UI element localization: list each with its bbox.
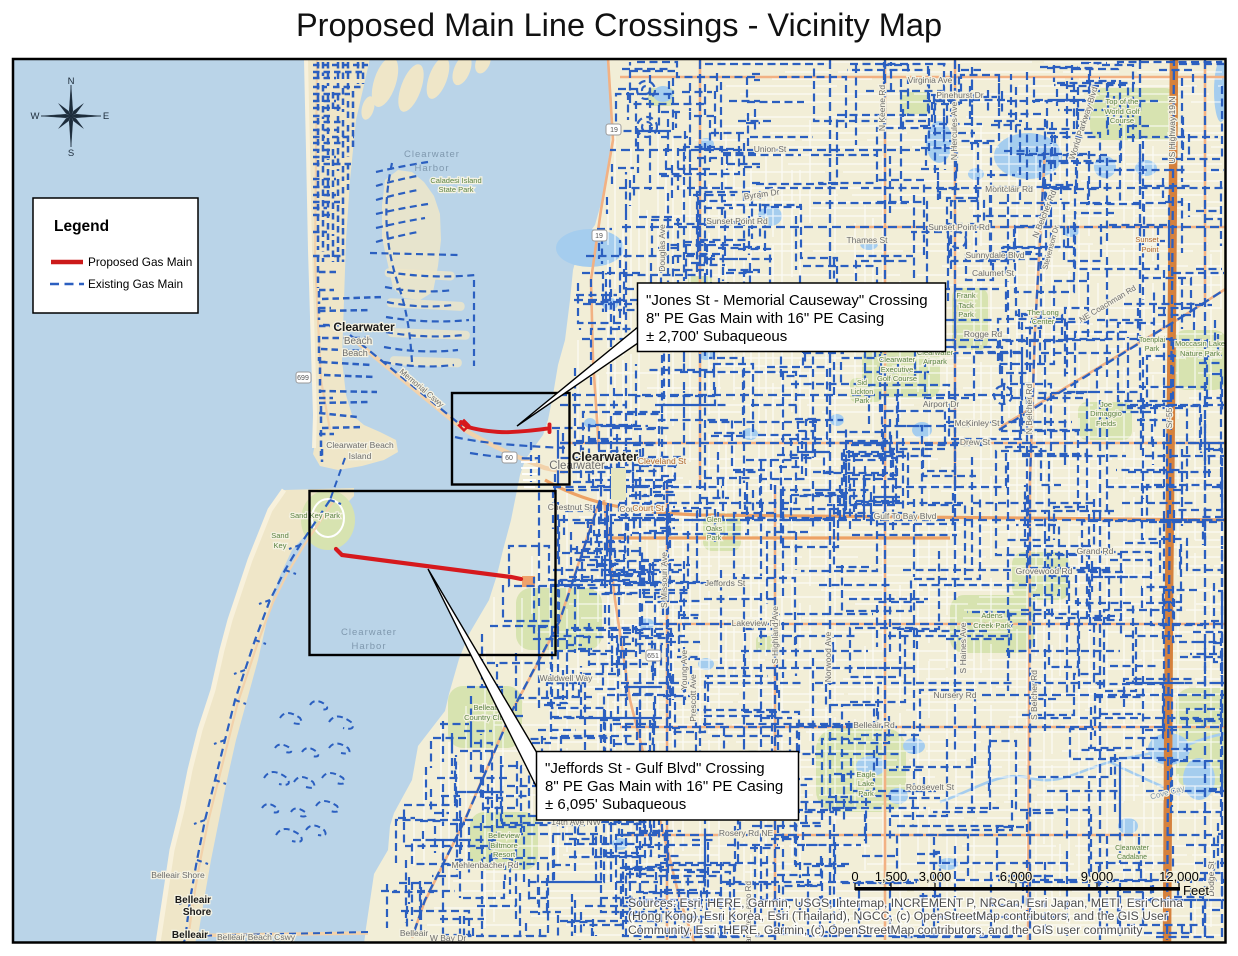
svg-text:8" PE Gas Main with 16" PE Cas: 8" PE Gas Main with 16" PE Casing (545, 778, 783, 795)
svg-text:19: 19 (595, 233, 603, 240)
svg-text:Drew St: Drew St (960, 437, 991, 447)
svg-text:6,000: 6,000 (1000, 869, 1033, 884)
svg-text:Thames St: Thames St (846, 235, 888, 245)
svg-text:Harbor: Harbor (414, 163, 449, 174)
svg-text:Airpark: Airpark (923, 357, 947, 366)
svg-text:Glen: Glen (707, 517, 722, 524)
svg-text:Norwood Ave: Norwood Ave (823, 632, 833, 683)
svg-text:Resort: Resort (493, 850, 516, 859)
svg-text:Grovewood Rd: Grovewood Rd (1016, 566, 1073, 576)
svg-text:3,000: 3,000 (919, 869, 952, 884)
svg-text:0: 0 (851, 869, 858, 884)
svg-text:McKinley St: McKinley St (955, 418, 1001, 428)
svg-text:9,000: 9,000 (1081, 869, 1114, 884)
svg-text:Island: Island (349, 451, 372, 461)
svg-text:"Jeffords St - Gulf Blvd" Cros: "Jeffords St - Gulf Blvd" Crossing (545, 760, 765, 777)
svg-text:Sources: Esri, HERE, Garmin, U: Sources: Esri, HERE, Garmin, USGS, Inter… (628, 896, 1183, 910)
svg-text:Lake: Lake (858, 779, 874, 788)
svg-text:Community, Esri, HERE, Garmin,: Community, Esri, HERE, Garmin, (c) OpenS… (628, 923, 1143, 937)
svg-text:Sand Key Park: Sand Key Park (290, 511, 340, 520)
svg-text:Frank: Frank (956, 291, 975, 300)
svg-text:Feet: Feet (1183, 883, 1209, 898)
svg-text:Course: Course (1110, 116, 1134, 125)
svg-text:Clearwater Beach: Clearwater Beach (326, 440, 394, 450)
svg-text:US Highway 19 N: US Highway 19 N (1167, 96, 1177, 163)
svg-text:Toenplai: Toenplai (1139, 337, 1166, 344)
svg-text:S: S (68, 148, 74, 159)
svg-text:Lickton: Lickton (851, 389, 873, 396)
svg-text:Prescott Ave: Prescott Ave (688, 674, 698, 722)
svg-text:S Belcher Rd: S Belcher Rd (1029, 670, 1039, 720)
svg-text:Clearwater: Clearwater (1115, 845, 1150, 852)
svg-text:Legend: Legend (54, 218, 109, 235)
svg-text:Rogge Rd: Rogge Rd (964, 329, 1003, 339)
svg-text:Joe: Joe (1100, 400, 1112, 409)
svg-text:Park: Park (858, 789, 874, 798)
svg-text:Belleair Beach Cswy: Belleair Beach Cswy (217, 932, 296, 942)
svg-text:(Hong Kong), Esri Korea, Esri: (Hong Kong), Esri Korea, Esri (Thailand)… (628, 909, 1168, 923)
svg-text:World Golf: World Golf (1104, 107, 1140, 116)
svg-text:8" PE Gas Main with 16" PE Cas: 8" PE Gas Main with 16" PE Casing (646, 310, 884, 327)
svg-text:Park: Park (707, 535, 722, 542)
svg-text:Waldwell Way: Waldwell Way (540, 673, 593, 683)
svg-text:Court St: Court St (632, 503, 664, 513)
svg-text:Tack: Tack (958, 301, 974, 310)
svg-text:19: 19 (610, 127, 618, 134)
svg-text:Roosevelt St: Roosevelt St (906, 782, 955, 792)
svg-text:12,000: 12,000 (1159, 869, 1199, 884)
svg-text:Sr-55: Sr-55 (1164, 407, 1174, 428)
svg-text:Shore: Shore (183, 907, 212, 918)
svg-text:Proposed Gas Main: Proposed Gas Main (88, 255, 192, 269)
svg-text:S Missouri Ave: S Missouri Ave (659, 552, 669, 608)
svg-text:Oaks: Oaks (706, 526, 723, 533)
svg-text:S Highland Ave: S Highland Ave (770, 606, 780, 664)
svg-text:Cadalane: Cadalane (1117, 854, 1147, 861)
svg-text:60: 60 (505, 455, 513, 462)
svg-text:Clearwater: Clearwater (549, 460, 605, 472)
svg-text:N: N (68, 76, 75, 87)
svg-text:Clearwater: Clearwater (333, 320, 395, 334)
svg-text:Beach: Beach (342, 348, 368, 358)
svg-text:Eagle: Eagle (856, 770, 875, 779)
svg-text:Center: Center (1032, 317, 1055, 326)
svg-text:Rosery Rd NE: Rosery Rd NE (719, 828, 774, 838)
svg-text:Sunset: Sunset (1135, 235, 1159, 244)
svg-text:Clearwater: Clearwater (404, 149, 460, 160)
svg-text:N Keene Rd: N Keene Rd (877, 85, 887, 132)
svg-text:Cleveland St: Cleveland St (638, 456, 687, 466)
svg-text:Belleair Rd: Belleair Rd (853, 720, 895, 730)
svg-text:Biltmore: Biltmore (490, 841, 518, 850)
svg-text:1,500: 1,500 (875, 869, 908, 884)
svg-text:Clearwater: Clearwater (879, 355, 916, 364)
svg-text:651: 651 (647, 653, 659, 660)
svg-text:State Park: State Park (438, 185, 473, 194)
svg-text:Pinehurst Dr: Pinehurst Dr (936, 90, 983, 100)
svg-text:Mehlenbacher Rd: Mehlenbacher Rd (451, 860, 518, 870)
svg-text:Nature Park: Nature Park (1180, 349, 1220, 358)
svg-text:Key: Key (274, 541, 287, 550)
svg-text:Virginia Ave: Virginia Ave (908, 75, 953, 85)
svg-text:Airport Dr: Airport Dr (923, 399, 960, 409)
svg-text:Beach: Beach (344, 336, 372, 347)
svg-text:Belleair: Belleair (175, 895, 211, 906)
svg-text:Caladesi Island: Caladesi Island (430, 176, 481, 185)
svg-text:Nursery Rd: Nursery Rd (934, 690, 977, 700)
svg-text:Belleair: Belleair (172, 930, 208, 941)
svg-text:Sunnydale Blvd: Sunnydale Blvd (965, 250, 1024, 260)
svg-text:S Haines Ave: S Haines Ave (958, 622, 968, 673)
svg-text:N Belcher Rd: N Belcher Rd (1024, 383, 1034, 434)
svg-text:Montclair Rd: Montclair Rd (985, 184, 1033, 194)
svg-text:Golf Course: Golf Course (877, 374, 917, 383)
svg-text:Sunset Point Rd: Sunset Point Rd (706, 216, 768, 226)
svg-text:E: E (103, 111, 109, 122)
svg-text:Gulf To Bay Blvd: Gulf To Bay Blvd (874, 511, 937, 521)
svg-text:699: 699 (297, 375, 309, 382)
svg-text:Calumet St: Calumet St (972, 268, 1015, 278)
svg-text:N Hercules Ave: N Hercules Ave (949, 102, 959, 161)
svg-text:Sid: Sid (857, 380, 867, 387)
svg-text:Jeffords St: Jeffords St (705, 578, 746, 588)
svg-text:Existing Gas Main: Existing Gas Main (88, 277, 183, 291)
svg-text:Clearwater: Clearwater (341, 627, 397, 638)
svg-text:Park: Park (958, 310, 974, 319)
svg-text:Belleair: Belleair (400, 928, 429, 938)
svg-text:Sunset Point Rd: Sunset Point Rd (928, 222, 990, 232)
svg-text:Park: Park (1145, 346, 1160, 353)
svg-text:Park: Park (855, 398, 870, 405)
svg-text:Moccasin Lake: Moccasin Lake (1175, 339, 1225, 348)
svg-text:Top of the: Top of the (1106, 97, 1139, 106)
svg-text:The Long: The Long (1027, 308, 1059, 317)
svg-text:± 6,095' Subaqueous: ± 6,095' Subaqueous (545, 796, 686, 813)
svg-text:Union St: Union St (754, 144, 787, 154)
svg-text:Executive: Executive (881, 365, 914, 374)
svg-text:Sand: Sand (271, 531, 289, 540)
svg-text:Harbor: Harbor (351, 641, 386, 652)
svg-text:Belleview: Belleview (488, 831, 520, 840)
svg-text:Creek Park: Creek Park (973, 621, 1011, 630)
svg-text:W: W (31, 111, 40, 122)
svg-text:± 2,700' Subaqueous: ± 2,700' Subaqueous (646, 328, 787, 345)
svg-text:Grand Rd: Grand Rd (1077, 546, 1114, 556)
svg-text:Point: Point (1141, 245, 1159, 254)
svg-text:Belleair Shore: Belleair Shore (151, 870, 205, 880)
svg-text:Dimaggio: Dimaggio (1090, 409, 1122, 418)
svg-text:Fields: Fields (1096, 419, 1116, 428)
svg-text:Douglas Ave: Douglas Ave (657, 224, 667, 272)
svg-text:Adens: Adens (981, 611, 1003, 620)
svg-text:"Jones St - Memorial Causeway": "Jones St - Memorial Causeway" Crossing (646, 292, 928, 309)
